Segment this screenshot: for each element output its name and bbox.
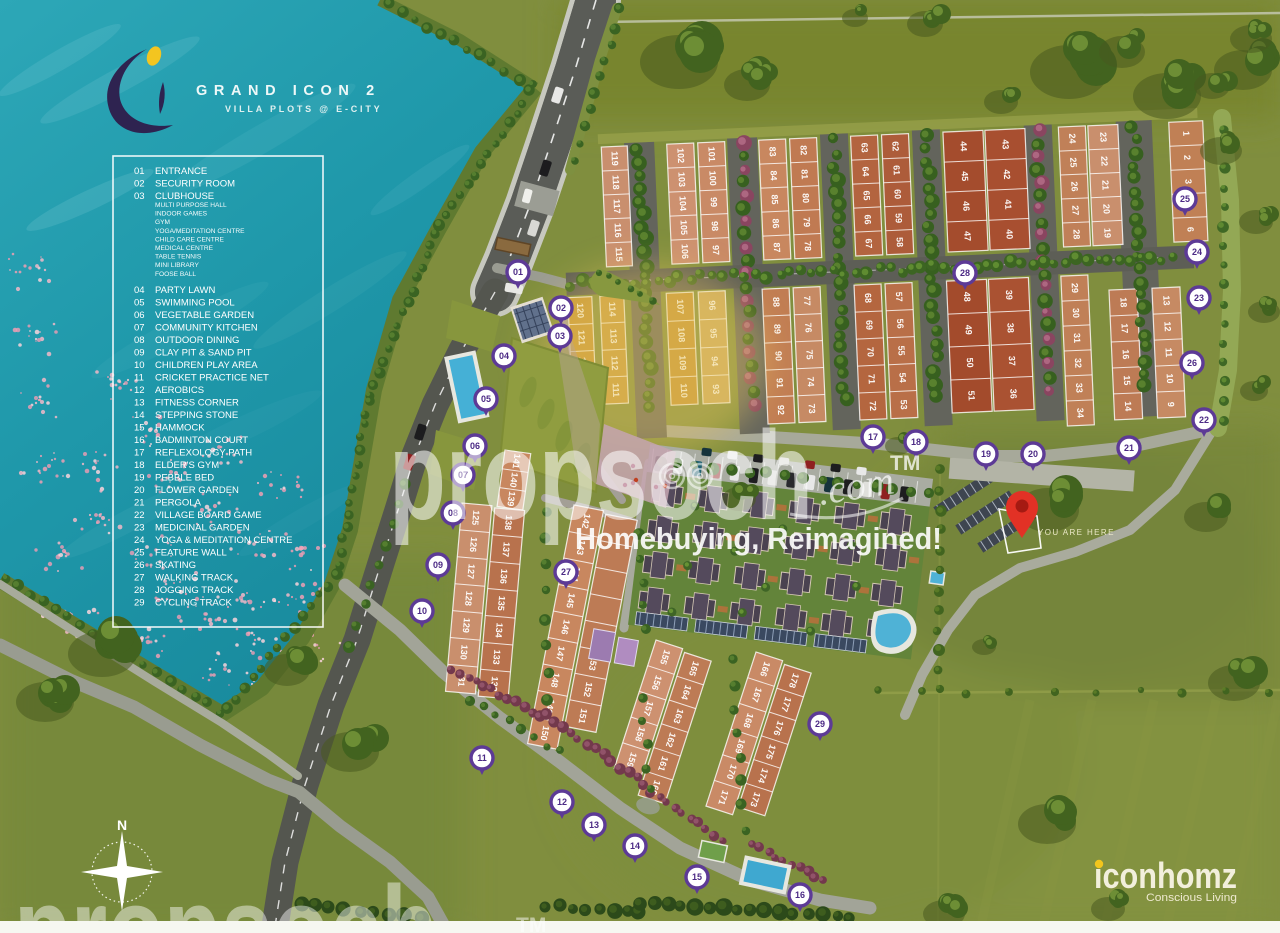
svg-text:CHILD CARE CENTRE: CHILD CARE CENTRE (155, 236, 224, 243)
svg-text:48: 48 (962, 292, 972, 302)
svg-text:129: 129 (461, 617, 472, 633)
svg-text:VILLAGE BOARD GAME: VILLAGE BOARD GAME (155, 510, 262, 521)
svg-text:37: 37 (1007, 356, 1017, 366)
svg-text:02: 02 (556, 303, 566, 313)
svg-text:81: 81 (799, 169, 809, 179)
svg-text:JOGGING TRACK: JOGGING TRACK (155, 585, 234, 596)
svg-text:22: 22 (1199, 415, 1209, 425)
svg-text:55: 55 (896, 345, 906, 355)
svg-text:13: 13 (589, 820, 599, 830)
svg-text:23: 23 (1098, 132, 1108, 142)
svg-text:YOGA & MEDITATION CENTRE: YOGA & MEDITATION CENTRE (155, 535, 292, 546)
svg-text:32: 32 (1073, 358, 1083, 368)
svg-text:51: 51 (966, 390, 976, 400)
svg-text:27: 27 (134, 573, 145, 584)
svg-text:HAMMOCK: HAMMOCK (155, 423, 205, 434)
svg-text:26: 26 (134, 560, 145, 571)
svg-text:22: 22 (134, 510, 145, 521)
svg-text:102: 102 (675, 148, 686, 163)
svg-text:63: 63 (859, 142, 869, 152)
svg-text:68: 68 (863, 293, 873, 303)
svg-text:53: 53 (899, 399, 909, 409)
svg-text:20: 20 (134, 485, 145, 496)
svg-text:133: 133 (491, 649, 502, 665)
svg-text:17: 17 (134, 448, 145, 459)
svg-text:58: 58 (894, 237, 904, 247)
svg-text:04: 04 (134, 285, 145, 296)
svg-text:YOU ARE HERE: YOU ARE HERE (1038, 528, 1115, 537)
svg-text:19: 19 (981, 449, 991, 459)
svg-text:CLAY PIT & SAND PIT: CLAY PIT & SAND PIT (155, 348, 252, 359)
svg-text:14: 14 (1123, 401, 1133, 411)
svg-text:87: 87 (772, 242, 782, 252)
svg-text:64: 64 (860, 166, 870, 176)
svg-text:N: N (117, 817, 127, 833)
svg-text:61: 61 (891, 165, 901, 175)
svg-text:03: 03 (555, 331, 565, 341)
svg-text:1: 1 (1181, 131, 1191, 136)
svg-text:71: 71 (866, 374, 876, 384)
svg-text:Conscious Living: Conscious Living (1146, 892, 1237, 904)
svg-text:11: 11 (134, 373, 144, 384)
svg-text:VILLA PLOTS @ E-CITY: VILLA PLOTS @ E-CITY (225, 104, 382, 114)
svg-text:18: 18 (1118, 297, 1128, 307)
svg-text:26: 26 (1187, 358, 1197, 368)
svg-text:12: 12 (557, 797, 567, 807)
svg-text:41: 41 (1003, 199, 1013, 209)
svg-text:28: 28 (1071, 229, 1081, 239)
svg-text:91: 91 (775, 378, 785, 388)
svg-text:24: 24 (1192, 247, 1202, 257)
svg-text:44: 44 (958, 141, 968, 151)
svg-text:65: 65 (861, 190, 871, 200)
svg-text:03: 03 (134, 191, 145, 202)
svg-text:27: 27 (561, 567, 571, 577)
svg-text:27: 27 (1070, 205, 1080, 215)
svg-text:50: 50 (965, 357, 975, 367)
svg-text:REFLEXOLOGY PATH: REFLEXOLOGY PATH (155, 448, 252, 459)
svg-text:15: 15 (134, 423, 145, 434)
svg-text:ELDER'S GYM: ELDER'S GYM (155, 460, 219, 471)
svg-text:45: 45 (960, 171, 970, 181)
svg-text:BADMINTON COURT: BADMINTON COURT (155, 435, 248, 446)
svg-text:19: 19 (134, 473, 145, 484)
svg-text:MEDICINAL GARDEN: MEDICINAL GARDEN (155, 523, 250, 534)
svg-text:104: 104 (677, 196, 688, 211)
svg-text:42: 42 (1002, 169, 1012, 179)
svg-text:89: 89 (772, 324, 782, 334)
svg-text:84: 84 (768, 170, 778, 180)
svg-text:21: 21 (134, 498, 145, 509)
svg-text:08: 08 (134, 335, 145, 346)
svg-text:115: 115 (614, 247, 625, 262)
svg-text:PERGOLA: PERGOLA (155, 498, 202, 509)
svg-text:GYM: GYM (155, 219, 170, 226)
svg-text:29: 29 (1070, 283, 1080, 293)
svg-text:OUTDOOR DINING: OUTDOOR DINING (155, 335, 239, 346)
svg-text:88: 88 (771, 297, 781, 307)
svg-text:99: 99 (709, 197, 719, 207)
svg-text:06: 06 (134, 310, 145, 321)
svg-text:80: 80 (800, 193, 810, 203)
svg-text:19: 19 (1102, 228, 1112, 238)
svg-text:Homebuying, Reimagined!: Homebuying, Reimagined! (575, 521, 942, 556)
svg-text:59: 59 (893, 213, 903, 223)
svg-text:GRAND ICON 2: GRAND ICON 2 (196, 83, 381, 99)
svg-text:74: 74 (805, 376, 815, 386)
svg-text:100: 100 (707, 170, 718, 185)
svg-text:21: 21 (1100, 180, 1110, 190)
svg-text:75: 75 (804, 349, 814, 359)
svg-text:103: 103 (676, 172, 687, 187)
svg-text:24: 24 (134, 535, 145, 546)
svg-text:49: 49 (963, 324, 973, 334)
svg-text:SECURITY ROOM: SECURITY ROOM (155, 179, 235, 190)
svg-text:118: 118 (611, 175, 622, 190)
svg-text:43: 43 (1000, 139, 1010, 149)
svg-text:11: 11 (1164, 348, 1174, 358)
svg-text:ENTRANCE: ENTRANCE (155, 166, 207, 177)
svg-text:20: 20 (1101, 204, 1111, 214)
svg-text:28: 28 (960, 268, 970, 278)
svg-text:INDOOR GAMES: INDOOR GAMES (155, 211, 208, 218)
svg-text:36: 36 (1008, 389, 1018, 399)
svg-text:14: 14 (134, 410, 145, 421)
svg-text:136: 136 (498, 568, 509, 584)
svg-text:130: 130 (458, 644, 469, 660)
svg-text:105: 105 (679, 220, 690, 235)
svg-text:39: 39 (1004, 290, 1014, 300)
svg-text:TM: TM (516, 914, 546, 933)
svg-text:25: 25 (134, 548, 145, 559)
svg-text:90: 90 (773, 351, 783, 361)
svg-text:09: 09 (134, 348, 145, 359)
svg-text:54: 54 (897, 372, 907, 382)
svg-text:56: 56 (895, 318, 905, 328)
svg-text:16: 16 (134, 435, 145, 446)
svg-text:3: 3 (1183, 179, 1193, 184)
svg-text:PARTY LAWN: PARTY LAWN (155, 285, 215, 296)
svg-text:11: 11 (477, 753, 487, 763)
svg-text:23: 23 (134, 523, 145, 534)
svg-text:COMMUNITY KITCHEN: COMMUNITY KITCHEN (155, 323, 258, 334)
svg-text:29: 29 (815, 719, 825, 729)
svg-text:FITNESS CORNER: FITNESS CORNER (155, 398, 239, 409)
svg-text:FEATURE WALL: FEATURE WALL (155, 548, 227, 559)
svg-text:79: 79 (802, 217, 812, 227)
svg-text:23: 23 (1194, 293, 1204, 303)
svg-text:82: 82 (798, 145, 808, 155)
svg-text:YOGA/MEDITATION CENTRE: YOGA/MEDITATION CENTRE (155, 228, 245, 235)
svg-text:33: 33 (1074, 383, 1084, 393)
svg-text:iconhomz: iconhomz (1094, 855, 1237, 896)
svg-text:05: 05 (481, 394, 491, 404)
svg-text:2: 2 (1182, 155, 1192, 160)
svg-text:PEBBLE BED: PEBBLE BED (155, 473, 214, 484)
svg-text:TM: TM (890, 452, 920, 475)
svg-text:SWIMMING POOL: SWIMMING POOL (155, 298, 235, 309)
svg-text:72: 72 (868, 401, 878, 411)
svg-text:47: 47 (962, 231, 972, 241)
svg-text:FLOWER GARDEN: FLOWER GARDEN (155, 485, 239, 496)
svg-text:62: 62 (890, 141, 900, 151)
svg-text:01: 01 (513, 267, 523, 277)
svg-text:28: 28 (134, 585, 145, 596)
svg-text:83: 83 (767, 146, 777, 156)
svg-text:18: 18 (134, 460, 145, 471)
svg-text:FOOSE BALL: FOOSE BALL (155, 271, 196, 278)
svg-text:15: 15 (692, 872, 702, 882)
svg-text:10: 10 (134, 360, 145, 371)
svg-text:16: 16 (795, 890, 805, 900)
svg-text:134: 134 (493, 622, 504, 638)
svg-text:15: 15 (1122, 375, 1132, 385)
svg-text:MULTI PURPOSE HALL: MULTI PURPOSE HALL (155, 202, 227, 209)
svg-text:14: 14 (630, 841, 640, 851)
svg-text:13: 13 (134, 398, 145, 409)
svg-text:07: 07 (134, 323, 145, 334)
svg-text:25: 25 (1180, 194, 1190, 204)
svg-text:101: 101 (706, 147, 717, 162)
svg-text:97: 97 (711, 245, 721, 255)
svg-text:31: 31 (1072, 333, 1082, 343)
svg-text:12: 12 (134, 385, 145, 396)
svg-text:76: 76 (803, 322, 813, 332)
svg-text:AEROBICS: AEROBICS (155, 385, 204, 396)
svg-text:CRICKET PRACTICE NET: CRICKET PRACTICE NET (155, 373, 269, 384)
svg-text:67: 67 (864, 238, 874, 248)
svg-text:24: 24 (1067, 133, 1077, 143)
svg-text:60: 60 (892, 189, 902, 199)
svg-text:6: 6 (1185, 227, 1195, 232)
svg-text:CYCLING TRACK: CYCLING TRACK (155, 598, 233, 609)
svg-text:17: 17 (868, 432, 878, 442)
svg-text:16: 16 (1121, 349, 1131, 359)
svg-text:05: 05 (134, 298, 145, 309)
svg-text:30: 30 (1071, 308, 1081, 318)
svg-text:127: 127 (465, 564, 476, 580)
svg-text:STEPPING STONE: STEPPING STONE (155, 410, 238, 421)
svg-text:34: 34 (1075, 408, 1085, 418)
svg-text:46: 46 (961, 201, 971, 211)
svg-text:VEGETABLE GARDEN: VEGETABLE GARDEN (155, 310, 254, 321)
svg-text:20: 20 (1028, 449, 1038, 459)
svg-text:25: 25 (1068, 157, 1078, 167)
svg-text:128: 128 (463, 591, 474, 607)
svg-text:01: 01 (134, 166, 145, 177)
svg-text:119: 119 (609, 151, 620, 166)
svg-text:21: 21 (1124, 443, 1134, 453)
svg-text:TABLE TENNIS: TABLE TENNIS (155, 254, 202, 261)
svg-text:13: 13 (1161, 295, 1171, 305)
svg-text:18: 18 (911, 437, 921, 447)
svg-text:116: 116 (613, 223, 624, 238)
svg-text:77: 77 (802, 295, 812, 305)
svg-text:66: 66 (862, 214, 872, 224)
svg-text:69: 69 (864, 320, 874, 330)
svg-text:WALKING TRACK: WALKING TRACK (155, 573, 234, 584)
svg-text:04: 04 (499, 351, 509, 361)
svg-text:135: 135 (496, 595, 507, 611)
svg-text:12: 12 (1162, 321, 1172, 331)
svg-text:78: 78 (803, 241, 813, 251)
svg-text:29: 29 (134, 598, 145, 609)
svg-text:CHILDREN PLAY AREA: CHILDREN PLAY AREA (155, 360, 258, 371)
svg-text:117: 117 (612, 199, 623, 214)
svg-text:SKATING: SKATING (155, 560, 196, 571)
svg-text:17: 17 (1119, 323, 1129, 333)
svg-text:9: 9 (1166, 402, 1176, 407)
svg-text:10: 10 (1165, 373, 1175, 383)
svg-text:26: 26 (1069, 181, 1079, 191)
svg-text:10: 10 (417, 606, 427, 616)
svg-text:86: 86 (771, 218, 781, 228)
svg-text:MINI LIBRARY: MINI LIBRARY (155, 262, 199, 269)
svg-text:22: 22 (1099, 156, 1109, 166)
svg-text:57: 57 (894, 291, 904, 301)
svg-text:70: 70 (865, 347, 875, 357)
svg-text:MEDICAL CENTRE: MEDICAL CENTRE (155, 245, 214, 252)
svg-text:85: 85 (770, 194, 780, 204)
svg-text:106: 106 (680, 244, 691, 259)
svg-text:09: 09 (433, 560, 443, 570)
svg-text:98: 98 (710, 221, 720, 231)
svg-text:40: 40 (1004, 229, 1014, 239)
svg-text:02: 02 (134, 179, 145, 190)
svg-text:CLUBHOUSE: CLUBHOUSE (155, 191, 214, 202)
svg-text:38: 38 (1005, 323, 1015, 333)
